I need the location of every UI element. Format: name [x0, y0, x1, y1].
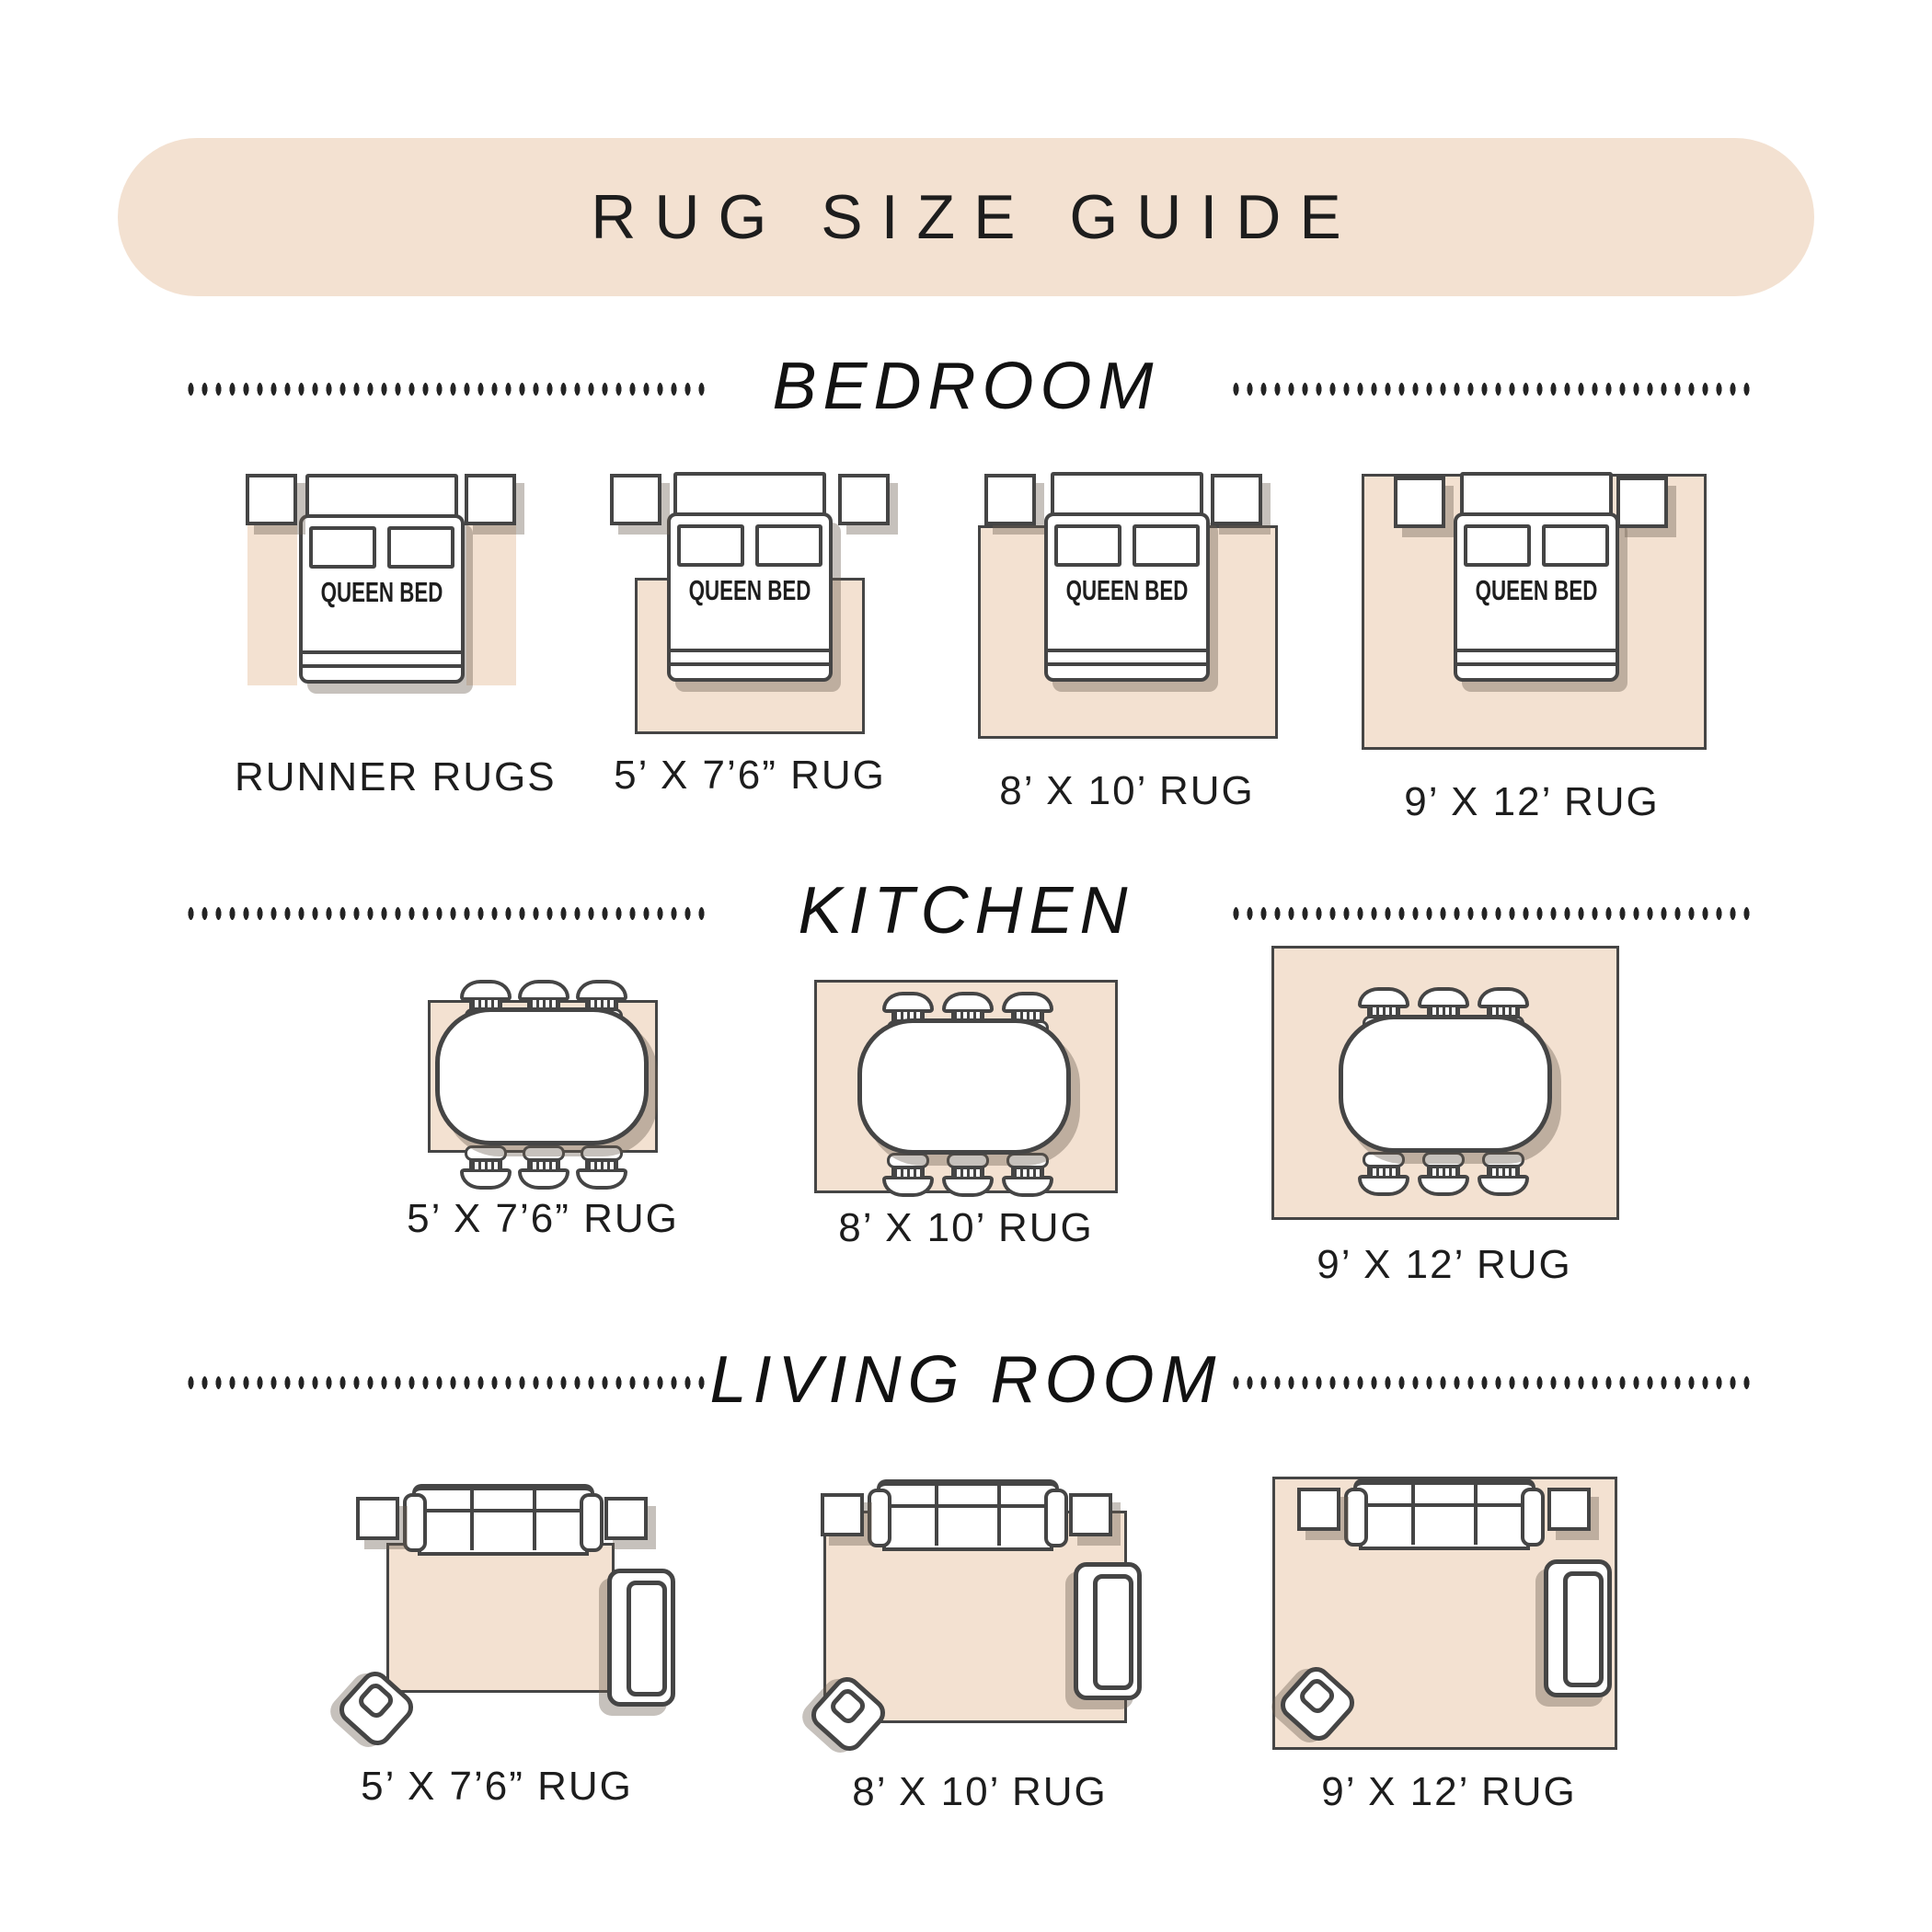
sofa-arm-right	[1044, 1489, 1068, 1547]
bedroom-runner-rugs-diagram: QUEEN BED RUNNER RUGS	[235, 465, 529, 833]
chair-back	[942, 1176, 994, 1197]
sofa-cushion-divider	[1411, 1485, 1415, 1545]
dining-table	[857, 1018, 1071, 1155]
kitchen-9x12-diagram: 9’ X 12’ RUG	[1251, 938, 1638, 1316]
bed-mattress: QUEEN BED	[1454, 512, 1619, 682]
side-table-left	[356, 1497, 399, 1540]
chair-back	[1358, 1175, 1409, 1196]
chair-cushion	[951, 1167, 984, 1179]
bed-fold-line	[1454, 662, 1619, 666]
sofa-arm-left	[868, 1489, 891, 1547]
living-room-5x76-diagram: 5’ X 7’6” RUG	[331, 1467, 662, 1845]
bed-label: QUEEN BED	[321, 576, 443, 609]
bedroom-section-header: BEDROOM	[0, 348, 1932, 431]
nightstand-left	[610, 474, 661, 525]
title-banner: RUG SIZE GUIDE	[118, 138, 1814, 296]
accent-chair	[607, 1569, 675, 1707]
page-title: RUG SIZE GUIDE	[572, 181, 1359, 253]
dotted-divider-right	[1229, 905, 1754, 922]
sofa	[407, 1484, 600, 1556]
sofa-seats	[418, 1509, 589, 1556]
chair-back	[1418, 1175, 1469, 1196]
chair-cushion	[469, 1159, 502, 1171]
chair-cushion	[1427, 1166, 1460, 1178]
chair-seat	[1363, 1152, 1405, 1167]
queen-bed: QUEEN BED	[299, 474, 465, 684]
dining-chair	[882, 1153, 934, 1197]
chair-back	[1002, 1176, 1053, 1197]
sofa-arm-right	[580, 1493, 604, 1552]
sofa-cushion-divider	[997, 1486, 1001, 1546]
chair-back	[1478, 1175, 1529, 1196]
living-room-section-header: LIVING ROOM	[0, 1341, 1932, 1424]
rug-size-label: 8’ X 10’ RUG	[791, 1769, 1168, 1815]
bed-label: QUEEN BED	[1066, 574, 1189, 607]
bed-fold-line	[1044, 649, 1210, 652]
sofa-cushion-divider	[1474, 1485, 1478, 1545]
dining-chair	[460, 1145, 512, 1190]
bed-fold-line	[299, 650, 465, 654]
dotted-divider-right	[1229, 381, 1754, 397]
chair-seat	[1422, 1152, 1465, 1167]
nightstand-right	[465, 474, 516, 525]
queen-bed: QUEEN BED	[1454, 472, 1619, 682]
chair-cushion	[1011, 1167, 1044, 1179]
sofa	[871, 1479, 1064, 1551]
sofa-seats	[1359, 1503, 1530, 1550]
side-table-right	[1069, 1493, 1112, 1536]
queen-bed: QUEEN BED	[1044, 472, 1210, 682]
bed-label: QUEEN BED	[1476, 574, 1598, 607]
nightstand-left	[246, 474, 297, 525]
pillow	[1542, 524, 1609, 567]
bed-mattress: QUEEN BED	[299, 514, 465, 684]
chair-back	[882, 1176, 934, 1197]
rug-size-label: 9’ X 12’ RUG	[1265, 1769, 1633, 1815]
chair-cushion	[1367, 1166, 1400, 1178]
chair-back	[576, 1168, 627, 1190]
side-table-right	[1547, 1488, 1591, 1531]
pillow	[755, 524, 822, 567]
chair-seat	[1006, 1153, 1049, 1168]
dining-table	[435, 1007, 649, 1145]
queen-bed: QUEEN BED	[667, 472, 833, 682]
side-table-left	[821, 1493, 864, 1536]
bed-fold-line	[299, 664, 465, 668]
sofa-arm-right	[1521, 1488, 1545, 1547]
pillow	[387, 526, 454, 569]
bed-mattress: QUEEN BED	[1044, 512, 1210, 682]
area-rug	[386, 1543, 615, 1693]
chair-cushion	[585, 1159, 618, 1171]
pillow	[309, 526, 376, 569]
dining-chair	[1478, 1152, 1529, 1196]
bedroom-5x76-diagram: QUEEN BED 5’ X 7’6” RUG	[603, 465, 897, 833]
pillow	[1054, 524, 1121, 567]
rug-size-label: 9’ X 12’ RUG	[1348, 779, 1716, 825]
chair-back	[460, 1168, 512, 1190]
nightstand-left	[1394, 477, 1445, 528]
sofa-cushion-divider	[470, 1490, 474, 1550]
dining-table	[1339, 1015, 1552, 1153]
chair-seat	[887, 1153, 929, 1168]
rug-size-label: 5’ X 7’6” RUG	[405, 1196, 681, 1242]
rug-size-label: 9’ X 12’ RUG	[1251, 1242, 1638, 1288]
sofa-cushion-divider	[533, 1490, 536, 1550]
bedroom-9x12-diagram: QUEEN BED 9’ X 12’ RUG	[1348, 465, 1716, 833]
nightstand-right	[1211, 474, 1262, 525]
nightstand-right	[838, 474, 890, 525]
bed-fold-line	[667, 662, 833, 666]
sofa-arm-left	[403, 1493, 427, 1552]
rug-size-label: 8’ X 10’ RUG	[791, 1205, 1141, 1251]
sofa-arm-left	[1344, 1488, 1368, 1547]
living-room-8x10-diagram: 8’ X 10’ RUG	[791, 1467, 1168, 1845]
chair-cushion	[891, 1167, 925, 1179]
runner-rug-right	[466, 523, 516, 685]
rug-size-guide-infographic: RUG SIZE GUIDE BEDROOM QUEEN BED RUNNER …	[0, 0, 1932, 1932]
bed-fold-line	[1044, 662, 1210, 666]
sofa	[1348, 1478, 1541, 1550]
nightstand-left	[984, 474, 1036, 525]
dining-chair	[576, 1145, 627, 1190]
rug-size-label: RUNNER RUGS	[235, 754, 529, 800]
bed-fold-line	[1454, 649, 1619, 652]
dotted-divider-right	[1229, 1374, 1754, 1391]
chair-seat	[1482, 1152, 1524, 1167]
rug-size-label: 8’ X 10’ RUG	[971, 768, 1283, 814]
chair-seat	[523, 1145, 565, 1161]
chair-seat	[947, 1153, 989, 1168]
dining-chair	[1418, 1152, 1469, 1196]
bed-mattress: QUEEN BED	[667, 512, 833, 682]
pillow	[1464, 524, 1531, 567]
living-room-9x12-diagram: 9’ X 12’ RUG	[1265, 1467, 1633, 1845]
side-table-right	[604, 1497, 648, 1540]
sofa-seats	[882, 1504, 1053, 1551]
bed-label: QUEEN BED	[689, 574, 811, 607]
accent-chair	[1544, 1559, 1612, 1697]
rug-size-label: 5’ X 7’6” RUG	[603, 753, 897, 799]
side-table-left	[1297, 1488, 1340, 1531]
dining-chair	[942, 1153, 994, 1197]
kitchen-8x10-diagram: 8’ X 10’ RUG	[791, 938, 1141, 1279]
bed-fold-line	[667, 649, 833, 652]
dining-chair	[1358, 1152, 1409, 1196]
chair-seat	[581, 1145, 623, 1161]
dining-chair	[1002, 1153, 1053, 1197]
chair-seat	[465, 1145, 507, 1161]
bedroom-8x10-diagram: QUEEN BED 8’ X 10’ RUG	[971, 465, 1283, 833]
accent-chair	[1074, 1562, 1142, 1700]
chair-cushion	[527, 1159, 560, 1171]
runner-rug-left	[247, 523, 297, 685]
rug-size-label: 5’ X 7’6” RUG	[331, 1764, 662, 1810]
kitchen-5x76-diagram: 5’ X 7’6” RUG	[405, 966, 681, 1270]
dining-chair	[518, 1145, 569, 1190]
sofa-cushion-divider	[935, 1486, 938, 1546]
pillow	[1133, 524, 1200, 567]
nightstand-right	[1616, 477, 1668, 528]
chair-cushion	[1487, 1166, 1520, 1178]
chair-back	[518, 1168, 569, 1190]
pillow	[677, 524, 744, 567]
